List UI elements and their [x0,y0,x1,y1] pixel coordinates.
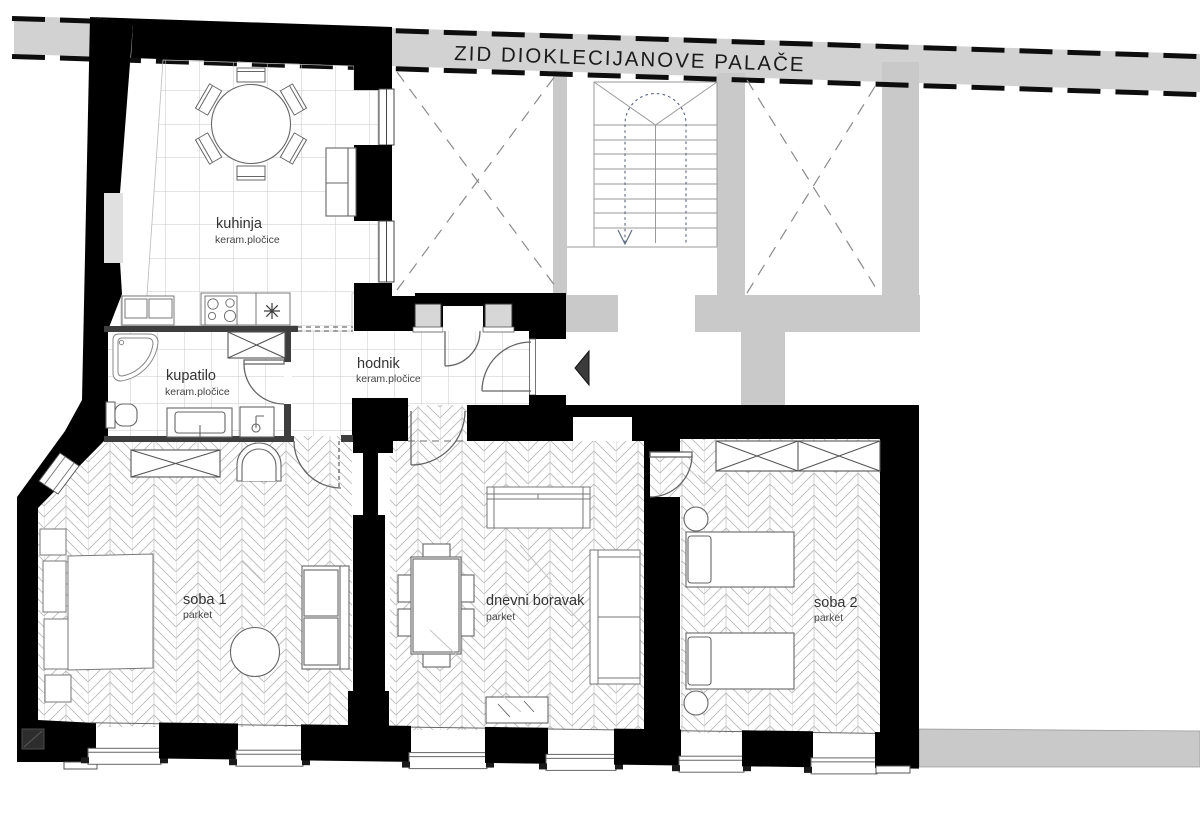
svg-text:keram.pločice: keram.pločice [356,373,421,385]
svg-text:keram.pločice: keram.pločice [215,234,280,246]
svg-text:hodnik: hodnik [357,356,400,372]
svg-text:keram.pločice: keram.pločice [165,386,230,398]
svg-text:kuhinja: kuhinja [216,216,263,232]
svg-text:soba 2: soba 2 [814,595,858,611]
svg-text:parket: parket [814,612,843,624]
svg-text:soba 1: soba 1 [183,592,227,608]
svg-text:dnevni boravak: dnevni boravak [486,593,585,609]
svg-text:parket: parket [486,611,515,623]
svg-text:kupatilo: kupatilo [166,368,216,384]
svg-text:parket: parket [183,609,212,621]
